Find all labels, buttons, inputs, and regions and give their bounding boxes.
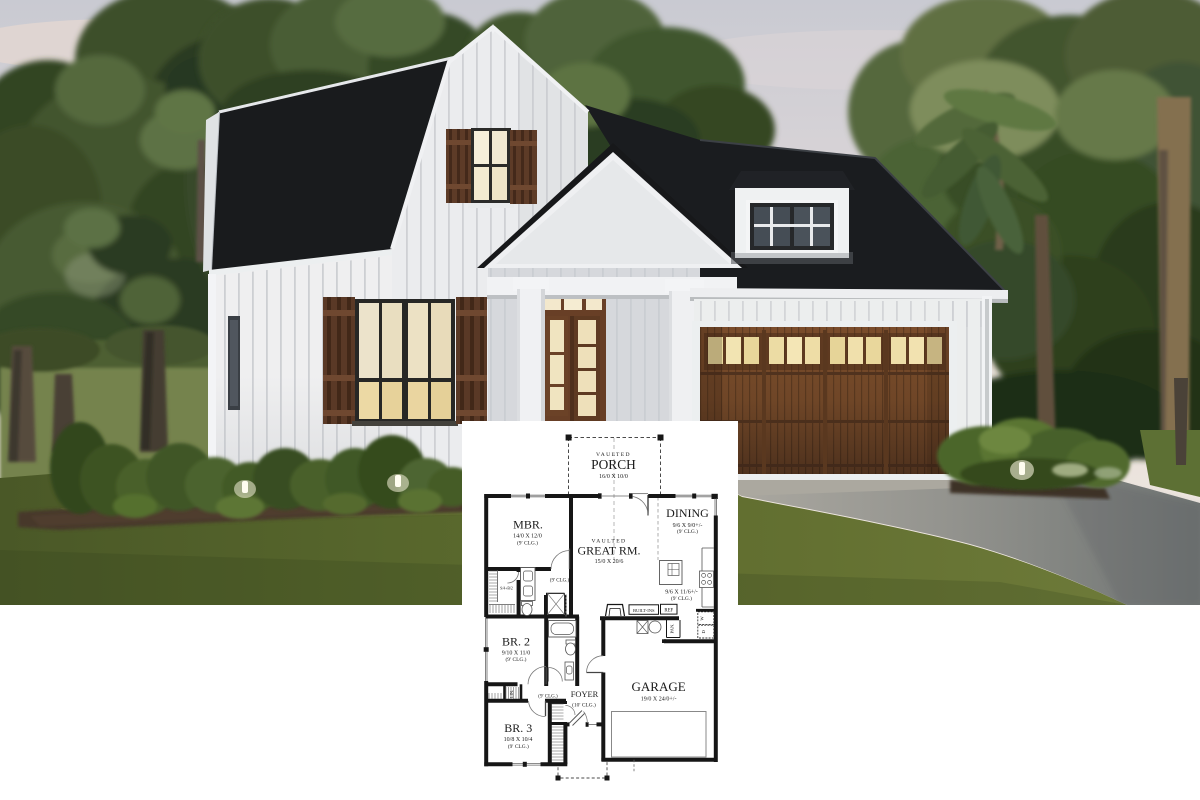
svg-text:BUILT-INS: BUILT-INS (633, 608, 655, 613)
svg-text:FOYER: FOYER (571, 690, 599, 699)
svg-text:SHLVS: SHLVS (569, 594, 574, 608)
svg-text:(10′ CLG.): (10′ CLG.) (572, 701, 596, 708)
svg-text:W: W (700, 616, 705, 621)
svg-text:10/8 X 10/4: 10/8 X 10/4 (504, 737, 533, 743)
svg-text:(9′ CLG.): (9′ CLG.) (550, 579, 570, 584)
svg-text:GARAGE: GARAGE (632, 679, 686, 694)
svg-text:GREAT RM.: GREAT RM. (577, 544, 640, 558)
svg-text:15/0 X 20/6: 15/0 X 20/6 (595, 559, 624, 565)
svg-text:14/0 X 12/0: 14/0 X 12/0 (513, 534, 542, 540)
svg-text:BR. 3: BR. 3 (504, 721, 532, 735)
svg-text:(9′ CLG.): (9′ CLG.) (517, 540, 538, 547)
svg-text:DINING: DINING (666, 506, 709, 520)
svg-text:(9′ CLG.): (9′ CLG.) (508, 743, 529, 750)
svg-text:(9′ CLG.): (9′ CLG.) (538, 695, 558, 700)
svg-text:LIN.: LIN. (509, 690, 514, 698)
svg-text:MBR.: MBR. (513, 518, 543, 532)
svg-text:BR. 2: BR. 2 (502, 635, 530, 649)
svg-text:(9′ CLG.): (9′ CLG.) (671, 595, 692, 602)
svg-text:S/4+B/2: S/4+B/2 (500, 587, 513, 591)
svg-text:(9′ CLG.): (9′ CLG.) (506, 656, 527, 663)
svg-text:9/6 X 11/6+/-: 9/6 X 11/6+/- (665, 590, 698, 596)
svg-text:9/10 X 11/0: 9/10 X 11/0 (502, 650, 530, 656)
svg-text:PORCH: PORCH (591, 457, 636, 472)
svg-text:(9′ CLG.): (9′ CLG.) (677, 528, 698, 535)
svg-text:19/0 X 24/0+/-: 19/0 X 24/0+/- (641, 697, 677, 703)
svg-text:16/0 X 10/0: 16/0 X 10/0 (599, 474, 628, 480)
svg-text:PAN.: PAN. (670, 624, 675, 634)
svg-text:REF: REF (664, 609, 673, 614)
